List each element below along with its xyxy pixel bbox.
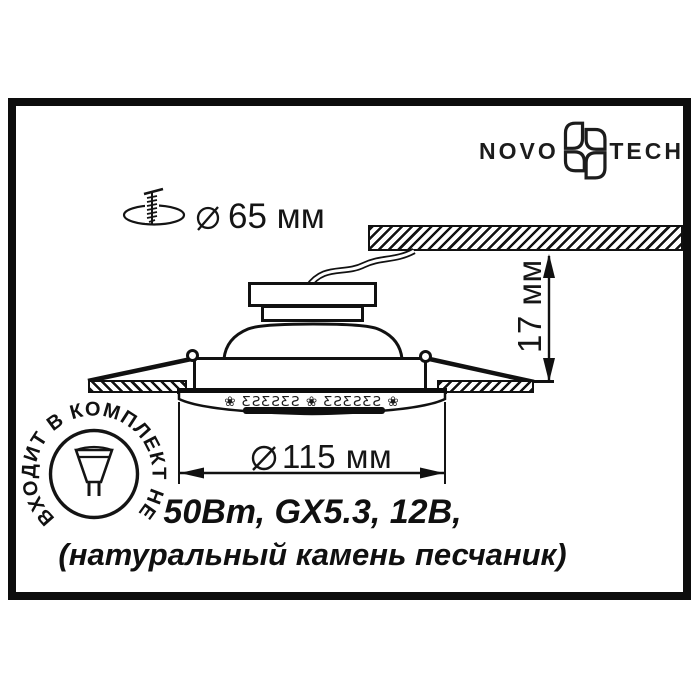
- spec-line-material: (натуральный камень песчаник): [40, 537, 585, 573]
- diameter-icon: [195, 203, 221, 231]
- brand-text-left: NOVO: [479, 138, 559, 165]
- height-dimension-value: 17 мм: [514, 281, 546, 353]
- brand-flower-icon: [561, 118, 608, 184]
- diameter-dimension-value: 115 мм: [282, 438, 392, 476]
- brand-text-right: TECH: [609, 138, 684, 165]
- ceiling-cut-left: [88, 380, 187, 393]
- brand-logo: NOVO TECH: [479, 116, 684, 186]
- ceiling-cut-right: [437, 380, 534, 393]
- cutout-dimension-value: 65 мм: [228, 197, 325, 237]
- pivot-left: [186, 349, 199, 362]
- terminal-block: [248, 282, 377, 307]
- lamp-opening: [243, 407, 385, 414]
- pivot-right: [419, 350, 432, 363]
- mounting-ring: [193, 357, 427, 391]
- diameter-dimension: 115 мм: [250, 438, 392, 476]
- spec-line-power: 50Вт, GX5.3, 12В,: [40, 493, 585, 532]
- cutout-dimension: 65 мм: [195, 197, 325, 237]
- cut-hole-icon: [116, 186, 194, 232]
- diameter-icon: [250, 443, 278, 471]
- spec-sheet: 65 мм NOVO TECH ❀ ƸƧƸƧƸƧ ❀: [0, 0, 700, 700]
- spec-text: 50Вт, GX5.3, 12В, (натуральный камень пе…: [40, 493, 585, 573]
